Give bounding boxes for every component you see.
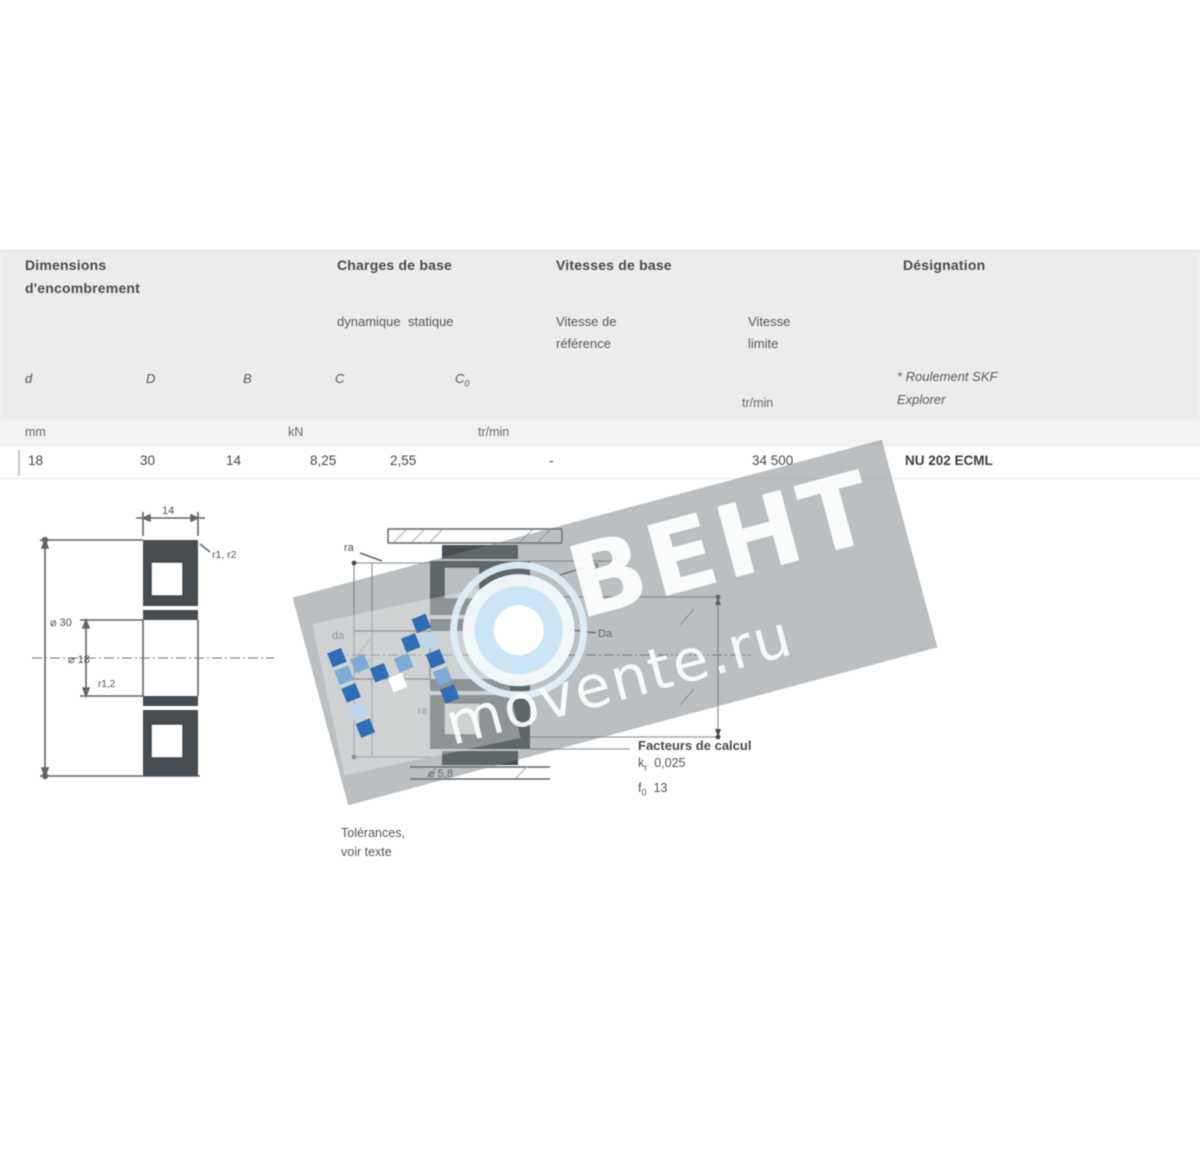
dim-b-label: 14 <box>162 505 174 517</box>
symbol-C0: C0 <box>455 371 469 389</box>
catalog-page: Dimensions d'encombrement Charges de bas… <box>0 0 1200 1165</box>
skf-explorer-note-line2: Explorer <box>897 392 945 407</box>
dim-od-label: ⌀ 30 <box>50 617 72 629</box>
value-designation: NU 202 ECML <box>905 453 993 468</box>
factor-kr: kr 0,025 <box>638 753 751 778</box>
header-dimensions-line1: Dimensions <box>25 257 106 273</box>
unit-mm: mm <box>25 425 46 439</box>
tolerances-note: Tolérances, voir texte <box>341 824 405 862</box>
table-data-row <box>0 447 1200 479</box>
factor-f0: f0 13 <box>638 778 751 803</box>
subheader-refspeed-line1: Vitesse de <box>556 314 616 329</box>
fillet-label: r1, r2 <box>212 549 237 561</box>
unit-rpm: tr/min <box>478 425 509 439</box>
header-designation: Désignation <box>903 257 985 273</box>
row-marker <box>18 450 20 476</box>
subheader-refspeed-line2: référence <box>556 336 611 351</box>
symbol-C0-base: C <box>455 371 464 386</box>
dim-bore-label: ⌀ 18 <box>68 654 90 666</box>
header-dimensions-line2: d'encombrement <box>25 280 140 296</box>
tolerances-line1: Tolérances, <box>341 824 405 843</box>
limspeed-unit: tr/min <box>742 396 773 410</box>
ra-top-label: ra <box>344 542 355 554</box>
factor-f0-value: 13 <box>653 781 667 795</box>
value-C: 8,25 <box>310 453 336 468</box>
bearing-section-drawing: 14 ⌀ 30 ⌀ 18 r1, r2 r1,2 <box>28 498 278 788</box>
factors-title: Facteurs de calcul <box>638 738 751 753</box>
subheader-static: statique <box>408 314 454 329</box>
table-units-strip <box>0 420 1200 447</box>
symbol-B: B <box>243 371 252 386</box>
header-loads: Charges de base <box>337 257 452 273</box>
value-C0: 2,55 <box>390 453 416 468</box>
factor-kr-value: 0,025 <box>654 756 685 770</box>
subheader-limspeed-line1: Vitesse <box>748 314 790 329</box>
subheader-dynamic: dynamique <box>337 314 401 329</box>
symbol-C: C <box>335 371 344 386</box>
value-d: 18 <box>28 453 43 468</box>
value-ref-speed: - <box>549 453 554 468</box>
header-speeds: Vitesses de base <box>556 257 672 273</box>
subheader-limspeed-line2: limite <box>748 336 778 351</box>
calculation-factors: Facteurs de calcul kr 0,025 f0 13 <box>638 738 751 802</box>
symbol-C0-sub: 0 <box>464 379 469 389</box>
factor-f0-subscript: 0 <box>641 787 646 797</box>
unit-kn: kN <box>288 425 303 439</box>
skf-explorer-note-line1: * Roulement SKF <box>897 369 997 384</box>
value-D: 30 <box>140 453 155 468</box>
tolerances-line2: voir texte <box>341 843 405 862</box>
symbol-d: d <box>25 371 32 386</box>
symbol-D: D <box>146 371 155 386</box>
fillet-label-bottom: r1,2 <box>98 679 116 690</box>
value-B: 14 <box>226 453 241 468</box>
factor-kr-subscript: r <box>644 763 647 773</box>
